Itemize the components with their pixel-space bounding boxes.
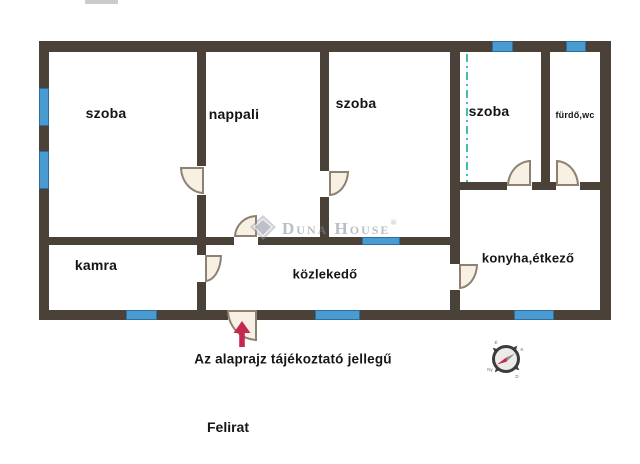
room-label-furdo-wc: fürdő,wc	[555, 110, 594, 120]
caption-text: Felirat	[207, 419, 249, 435]
door-arc-szoba3	[507, 160, 531, 186]
entrance-arrow-icon	[228, 320, 256, 348]
scan-artifact	[85, 0, 118, 4]
wall-top	[39, 41, 611, 52]
room-label-szoba1: szoba	[86, 105, 127, 121]
window-szoba1-left-upper	[39, 88, 49, 126]
wall-szoba3-furdo	[541, 52, 550, 190]
watermark-text: Duna House®	[282, 219, 396, 237]
door-arc-szoba1	[180, 167, 204, 194]
window-konyha-bottom	[514, 310, 554, 320]
window-kozlekedo-bottom	[315, 310, 360, 320]
watermark-diamond-icon	[249, 214, 277, 241]
floor-plan: szoba nappali szoba szoba fürdő,wc kamra…	[0, 0, 640, 464]
compass-label-north: É	[494, 339, 497, 345]
compass-label-west: Ny	[487, 367, 493, 372]
room-label-szoba2: szoba	[336, 95, 377, 111]
window-szoba1-left-lower	[39, 151, 49, 189]
door-arc-szoba2	[329, 171, 349, 196]
door-arc-kamra	[205, 255, 222, 282]
room-label-kozlekedo: közlekedő	[293, 267, 358, 282]
watermark: Duna House®	[249, 214, 396, 241]
room-label-szoba3: szoba	[469, 103, 510, 119]
registered-mark: ®	[390, 218, 396, 227]
door-arc-furdo	[556, 160, 579, 186]
room-label-konyha-etkezo: konyha,étkező	[482, 251, 574, 266]
wall-right	[600, 41, 611, 320]
disclaimer-text: Az alaprajz tájékoztató jellegű	[194, 352, 392, 367]
room-label-kamra: kamra	[75, 257, 117, 273]
door-arc-konyha	[459, 264, 478, 289]
compass-label-east: K	[520, 347, 523, 352]
window-furdo-top	[566, 41, 586, 52]
window-szoba3-top	[492, 41, 513, 52]
compass-icon: É K D Ny	[485, 338, 527, 380]
room-label-nappali: nappali	[209, 106, 259, 122]
window-kamra-bottom	[126, 310, 157, 320]
compass-label-south: D	[515, 374, 519, 379]
